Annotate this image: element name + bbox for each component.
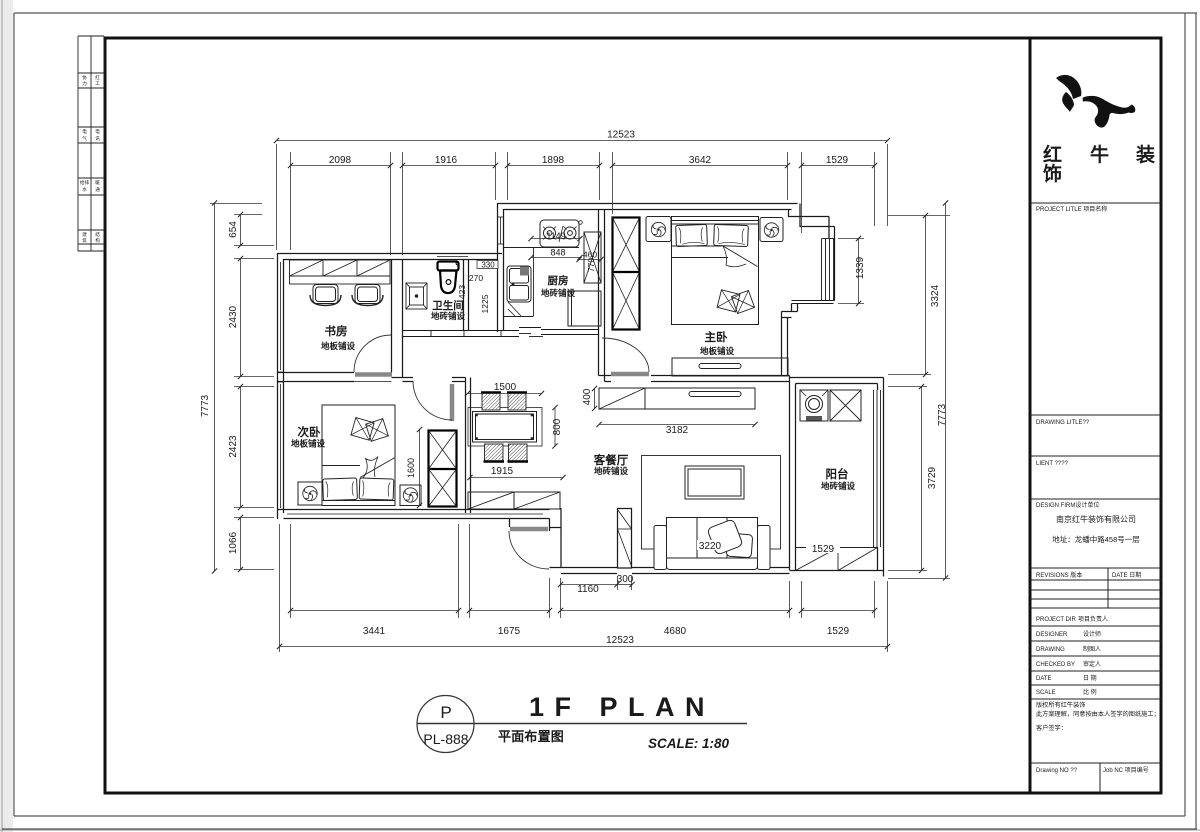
svg-text:300: 300 [617,574,634,585]
svg-text:建: 建 [82,231,87,238]
svg-text:PROJECT DIR: PROJECT DIR [1036,617,1077,623]
svg-text:CHECKED BY: CHECKED BY [1036,662,1075,668]
svg-text:力: 力 [82,80,87,87]
svg-text:厨房: 厨房 [548,274,569,287]
svg-text:书房: 书房 [325,324,348,338]
svg-text:1500: 1500 [494,382,517,393]
svg-text:项目负责人: 项目负责人 [1078,615,1108,623]
svg-text:比 例: 比 例 [1083,688,1097,696]
svg-text:2423: 2423 [228,435,239,458]
svg-text:此方案理解，同意按由本人签字的图纸施工；: 此方案理解，同意按由本人签字的图纸施工； [1036,710,1160,718]
svg-text:400: 400 [582,388,593,405]
svg-text:结: 结 [95,231,100,238]
svg-text:红: 红 [95,74,100,80]
svg-text:制图人: 制图人 [1083,645,1101,653]
svg-text:版权所有红牛装饰: 版权所有红牛装饰 [1036,701,1086,709]
svg-text:3642: 3642 [689,155,712,166]
svg-text:SCALE: SCALE [1036,690,1056,696]
svg-text:主卧: 主卧 [705,330,728,344]
svg-text:4680: 4680 [664,626,687,637]
svg-text:3182: 3182 [666,425,689,436]
svg-text:1066: 1066 [228,531,239,554]
svg-text:红: 红 [1043,143,1062,166]
svg-text:DATE 日期: DATE 日期 [1112,571,1141,579]
svg-text:DESIGNER: DESIGNER [1036,632,1068,638]
svg-text:地板铺设: 地板铺设 [700,346,735,356]
svg-text:1529: 1529 [812,544,835,555]
svg-text:气: 气 [82,135,87,141]
svg-text:地板铺设: 地板铺设 [321,341,356,351]
svg-text:DRAWING: DRAWING [1036,647,1065,653]
svg-text:1529: 1529 [826,155,849,166]
svg-text:12523: 12523 [606,635,634,646]
svg-text:牛: 牛 [1090,143,1109,166]
svg-text:2430: 2430 [228,305,239,328]
svg-text:工: 工 [95,81,100,86]
svg-text:848: 848 [550,248,565,258]
svg-text:Drawing NO ??: Drawing NO ?? [1036,768,1078,774]
svg-text:12523: 12523 [607,130,635,141]
svg-text:Job NC 项目编号: Job NC 项目编号 [1103,766,1149,774]
svg-text:3220: 3220 [699,541,722,552]
svg-text:1149: 1149 [546,231,565,241]
svg-text:通: 通 [95,186,100,193]
svg-text:日 期: 日 期 [1083,674,1097,682]
svg-text:DATE: DATE [1036,676,1052,682]
svg-text:筑: 筑 [82,237,87,244]
svg-text:270: 270 [469,273,483,283]
svg-text:1F PLAN: 1F PLAN [529,692,715,722]
svg-text:1898: 1898 [542,155,565,166]
svg-text:423: 423 [457,285,467,299]
svg-text:暖: 暖 [95,179,100,186]
svg-text:协: 协 [82,74,87,81]
svg-text:地砖铺设: 地砖铺设 [594,466,629,476]
svg-text:REVISIONS 版本: REVISIONS 版本 [1036,571,1082,579]
svg-text:地板铺设: 地板铺设 [291,439,326,449]
svg-text:南京红牛装饰有限公司: 南京红牛装饰有限公司 [1056,514,1136,524]
svg-text:电: 电 [82,128,87,134]
svg-text:1339: 1339 [855,256,866,279]
svg-text:PROJECT LITLE 项目名称: PROJECT LITLE 项目名称 [1036,205,1107,213]
svg-text:客户签字：: 客户签字： [1036,724,1067,732]
svg-text:P: P [440,703,451,722]
svg-text:1675: 1675 [498,626,521,637]
svg-text:地砖铺设: 地砖铺设 [431,311,466,321]
svg-text:DRAWING LITLE??: DRAWING LITLE?? [1036,420,1090,426]
svg-text:1160: 1160 [577,584,599,595]
svg-text:LIENT ????: LIENT ???? [1036,461,1069,467]
svg-text:客餐厅: 客餐厅 [593,453,629,467]
svg-text:1529: 1529 [827,626,850,637]
svg-text:1600: 1600 [406,458,416,478]
svg-text:1915: 1915 [491,466,514,477]
svg-text:水: 水 [82,186,87,192]
svg-text:DESIGN FIRM设计单位: DESIGN FIRM设计单位 [1036,501,1099,509]
svg-text:PL-888: PL-888 [423,731,468,747]
svg-text:电: 电 [95,128,100,134]
svg-text:654: 654 [228,221,239,238]
svg-text:800: 800 [552,418,563,435]
svg-text:1225: 1225 [480,294,490,313]
svg-text:设计师: 设计师 [1083,630,1101,638]
svg-text:3729: 3729 [927,466,938,489]
svg-text:地砖铺设: 地砖铺设 [541,288,576,298]
svg-text:饰: 饰 [1043,162,1062,185]
svg-text:770: 770 [586,258,596,272]
svg-text:次卧: 次卧 [298,425,321,439]
svg-text:330: 330 [481,261,495,270]
svg-text:给排: 给排 [80,179,90,186]
svg-text:审定人: 审定人 [1083,660,1101,668]
svg-text:3324: 3324 [930,284,941,307]
svg-text:构: 构 [95,237,100,244]
svg-text:地址：龙蟠中路458号一层: 地址：龙蟠中路458号一层 [1052,534,1140,544]
svg-text:地砖铺设: 地砖铺设 [821,481,856,491]
svg-text:阳台: 阳台 [826,467,849,481]
svg-text:2098: 2098 [329,155,352,166]
svg-text:3441: 3441 [363,626,386,637]
svg-text:平面布置图: 平面布置图 [498,729,564,744]
svg-text:7773: 7773 [200,394,211,417]
svg-text:讯: 讯 [95,135,100,142]
svg-text:SCALE: 1:80: SCALE: 1:80 [648,736,730,751]
svg-text:7773: 7773 [937,403,948,426]
svg-text:1916: 1916 [435,155,458,166]
svg-text:装: 装 [1135,143,1155,166]
